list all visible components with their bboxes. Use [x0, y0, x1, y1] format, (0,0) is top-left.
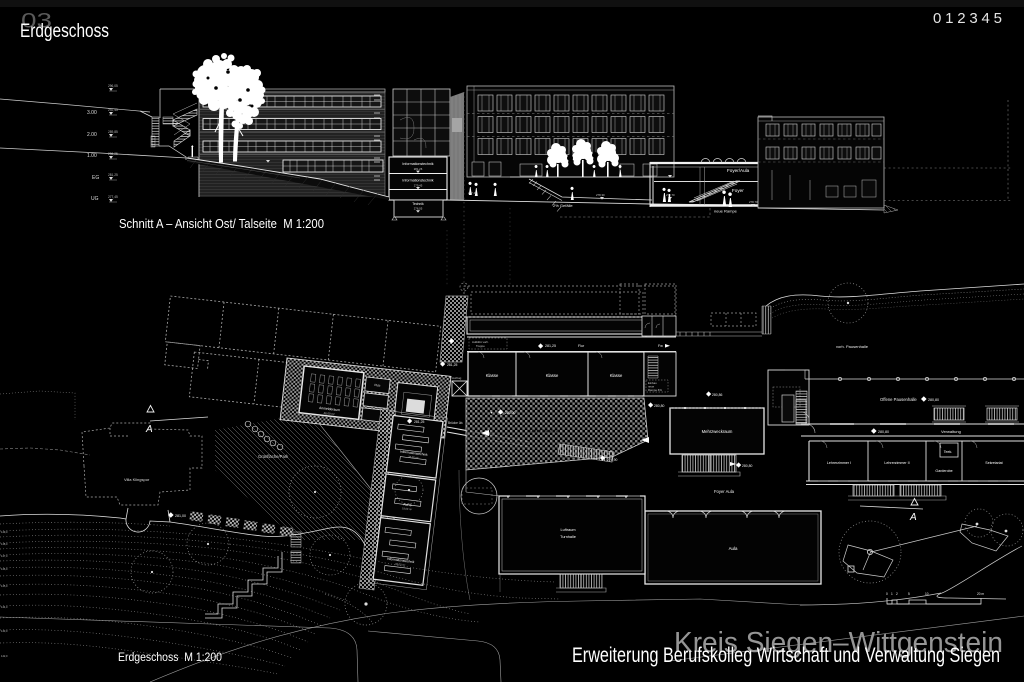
svg-text:Lehrerzimmer I: Lehrerzimmer I — [827, 461, 851, 465]
svg-text:147,0: 147,0 — [1, 554, 8, 558]
svg-text:280,80: 280,80 — [654, 404, 664, 408]
svg-text:148,0: 148,0 — [1, 542, 8, 546]
svg-text:Turnhalle: Turnhalle — [560, 535, 576, 539]
svg-text:Offene Pausenhalle: Offene Pausenhalle — [880, 397, 917, 402]
svg-text:neue Rampe: neue Rampe — [714, 209, 738, 214]
svg-text:Teek.: Teek. — [944, 450, 953, 454]
svg-text:276,90: 276,90 — [607, 458, 617, 462]
svg-text:Erweiterung Berufskolleg Wirts: Erweiterung Berufskolleg Wirtschaft und … — [572, 644, 1000, 667]
svg-text:Verwaltung: Verwaltung — [941, 429, 961, 434]
svg-text:145,0: 145,0 — [1, 584, 8, 588]
svg-text:Foyer/Aula: Foyer/Aula — [727, 168, 750, 173]
svg-text:278,70: 278,70 — [749, 200, 758, 204]
svg-text:Rampe 6%: Rampe 6% — [648, 388, 662, 392]
svg-text:281,25: 281,25 — [414, 420, 424, 424]
svg-text:Putz: Putz — [374, 383, 381, 388]
svg-text:280,80: 280,80 — [742, 464, 752, 468]
svg-text:10: 10 — [925, 592, 929, 596]
svg-text:Klasse: Klasse — [486, 373, 499, 378]
svg-text:280,86: 280,86 — [712, 393, 722, 397]
svg-text:A: A — [909, 512, 917, 523]
svg-text:Sekretariat: Sekretariat — [985, 461, 1002, 465]
svg-text:Luftraum: Luftraum — [561, 528, 576, 532]
svg-text:281,25: 281,25 — [545, 344, 556, 348]
svg-text:Schnitt A – Ansicht Ost/ Talse: Schnitt A – Ansicht Ost/ Talseite M 1:20… — [119, 216, 324, 231]
svg-text:vorh. Pausenhalle: vorh. Pausenhalle — [836, 344, 869, 349]
svg-text:280,00: 280,00 — [505, 411, 515, 415]
svg-text:Foyer Aula: Foyer Aula — [714, 489, 735, 494]
svg-text:Oberer Pausenhof: Oberer Pausenhof — [530, 429, 559, 433]
svg-text:149,0: 149,0 — [1, 530, 8, 534]
svg-text:UG: UG — [91, 196, 99, 202]
svg-text:Erdgeschoss M 1:200: Erdgeschoss M 1:200 — [118, 650, 222, 664]
svg-text:3.00: 3.00 — [87, 110, 97, 116]
svg-text:Erdgeschoss: Erdgeschoss — [20, 21, 109, 42]
svg-text:276,05: 276,05 — [414, 207, 423, 211]
svg-text:20 m: 20 m — [977, 592, 984, 596]
svg-text:146,0: 146,0 — [1, 567, 8, 571]
svg-text:1.00: 1.00 — [87, 153, 97, 159]
svg-text:Brücke üb.: Brücke üb. — [448, 421, 463, 425]
svg-text:Lehrerzimmer II: Lehrerzimmer II — [884, 461, 909, 465]
svg-text:Informationstechnik: Informationstechnik — [402, 162, 433, 166]
svg-text:✦: ✦ — [490, 411, 493, 415]
svg-text:277,45: 277,45 — [468, 191, 477, 195]
svg-text:296,05: 296,05 — [108, 84, 118, 88]
svg-text:EG: EG — [92, 175, 99, 181]
svg-text:Informationstechnik: Informationstechnik — [402, 179, 433, 183]
svg-text:278,70: 278,70 — [666, 193, 675, 197]
svg-text:Aula: Aula — [729, 546, 738, 551]
svg-text:Fw: Fw — [658, 344, 663, 348]
svg-text:A: A — [145, 424, 153, 435]
svg-text:281,25: 281,25 — [447, 363, 457, 367]
svg-text:Grünfläche/Park: Grünfläche/Park — [258, 454, 289, 459]
svg-text:143,0: 143,0 — [1, 629, 8, 633]
svg-text:281,26: 281,26 — [414, 167, 423, 171]
svg-text:281,25: 281,25 — [108, 173, 118, 177]
svg-text:Klasse: Klasse — [610, 373, 623, 378]
svg-text:142,0: 142,0 — [1, 654, 8, 658]
svg-text:277,45: 277,45 — [108, 195, 118, 199]
svg-text:5: 5 — [908, 592, 910, 596]
svg-text:Klasse: Klasse — [546, 373, 559, 378]
svg-text:279,45: 279,45 — [414, 184, 423, 188]
svg-text:1: 1 — [891, 592, 893, 596]
svg-text:Flur: Flur — [578, 344, 585, 348]
svg-text:Villa Klingspor: Villa Klingspor — [124, 477, 150, 482]
svg-text:2% Gefälle: 2% Gefälle — [553, 203, 573, 208]
svg-text:Foyer: Foyer — [732, 188, 744, 193]
svg-text:Treppe: Treppe — [476, 344, 485, 348]
svg-text:278,30: 278,30 — [596, 193, 605, 197]
svg-text:Mehrzweckraum: Mehrzweckraum — [702, 429, 733, 434]
svg-text:281,00: 281,00 — [175, 514, 186, 518]
svg-text:0: 0 — [886, 592, 888, 596]
svg-text:Garderobe: Garderobe — [935, 469, 952, 473]
svg-text:2.00: 2.00 — [87, 132, 97, 138]
svg-text:144,0: 144,0 — [1, 605, 8, 609]
svg-text:2: 2 — [896, 592, 898, 596]
svg-text:Aufzug: Aufzug — [452, 376, 462, 380]
svg-text:289,85: 289,85 — [108, 130, 118, 134]
svg-text:Technik: Technik — [412, 202, 424, 206]
svg-text:280,80: 280,80 — [878, 430, 889, 434]
svg-text:280,80: 280,80 — [928, 398, 939, 402]
